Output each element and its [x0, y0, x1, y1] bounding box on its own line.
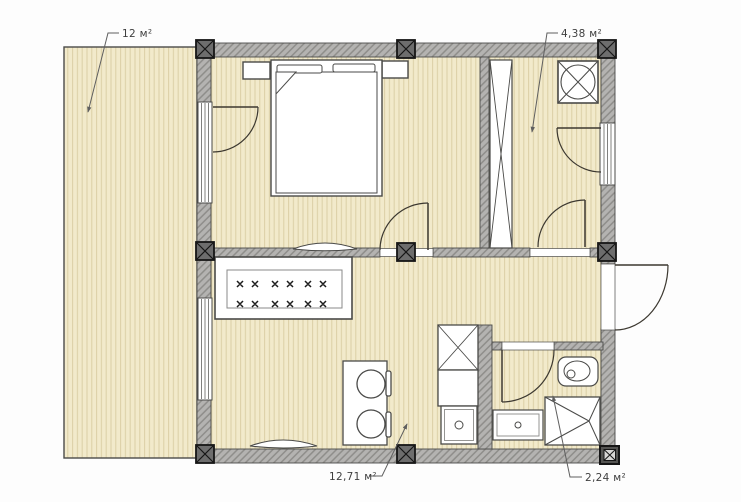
nightstand-right [382, 61, 408, 78]
hall-area-text: 4,38 м² [561, 28, 602, 40]
bathroom-west-wall [478, 325, 492, 449]
kitchen-counter [438, 370, 478, 406]
nightstand-left [243, 62, 270, 79]
chair-back [386, 412, 391, 437]
cooker [441, 406, 477, 444]
dining-set [343, 361, 391, 445]
hall-doorway [530, 249, 590, 257]
kitchen-furniture [438, 325, 478, 444]
post [196, 40, 214, 58]
floor-plan: 12 м² 4,38 м² 12,71 м² 2,24 м² [0, 0, 741, 502]
shower-tray [545, 397, 600, 445]
kitchen-sink-unit [438, 325, 478, 370]
post [397, 40, 415, 58]
sofa [215, 257, 352, 319]
bathroom-north-wall [492, 342, 502, 350]
post-corner [600, 446, 619, 464]
bathroom-doorway [502, 342, 554, 350]
wardrobe [490, 60, 512, 248]
chair-back [386, 371, 391, 396]
west-wall-segment [197, 203, 211, 244]
post [598, 40, 616, 58]
post [397, 445, 415, 463]
stool [357, 410, 385, 438]
kitchen-living-area-text: 12,71 м² [329, 471, 377, 483]
post [196, 445, 214, 463]
west-wall-segment [197, 259, 211, 299]
double-bed [271, 60, 382, 196]
terrace-deck [64, 47, 197, 458]
entry-door [615, 265, 668, 330]
washbasin [558, 357, 598, 386]
terrace-area-text: 12 м² [122, 28, 152, 40]
extractor-fan [558, 61, 598, 103]
living-window [198, 298, 212, 400]
floor-plan-drawing: 12 м² 4,38 м² 12,71 м² 2,24 м² [0, 0, 741, 502]
interior-wall-segment [433, 248, 530, 257]
post [598, 243, 616, 261]
bathroom-area-text: 2,24 м² [585, 472, 626, 484]
bedroom-hall-wall [480, 57, 489, 248]
pillow-right [333, 64, 375, 72]
stool [357, 370, 385, 398]
bathroom-north-wall [554, 342, 603, 350]
bedroom-window [198, 102, 212, 203]
hall-window [600, 123, 615, 185]
vanity-cabinet [493, 410, 543, 440]
post [196, 242, 214, 260]
post [397, 243, 415, 261]
entry-doorway [601, 264, 615, 330]
